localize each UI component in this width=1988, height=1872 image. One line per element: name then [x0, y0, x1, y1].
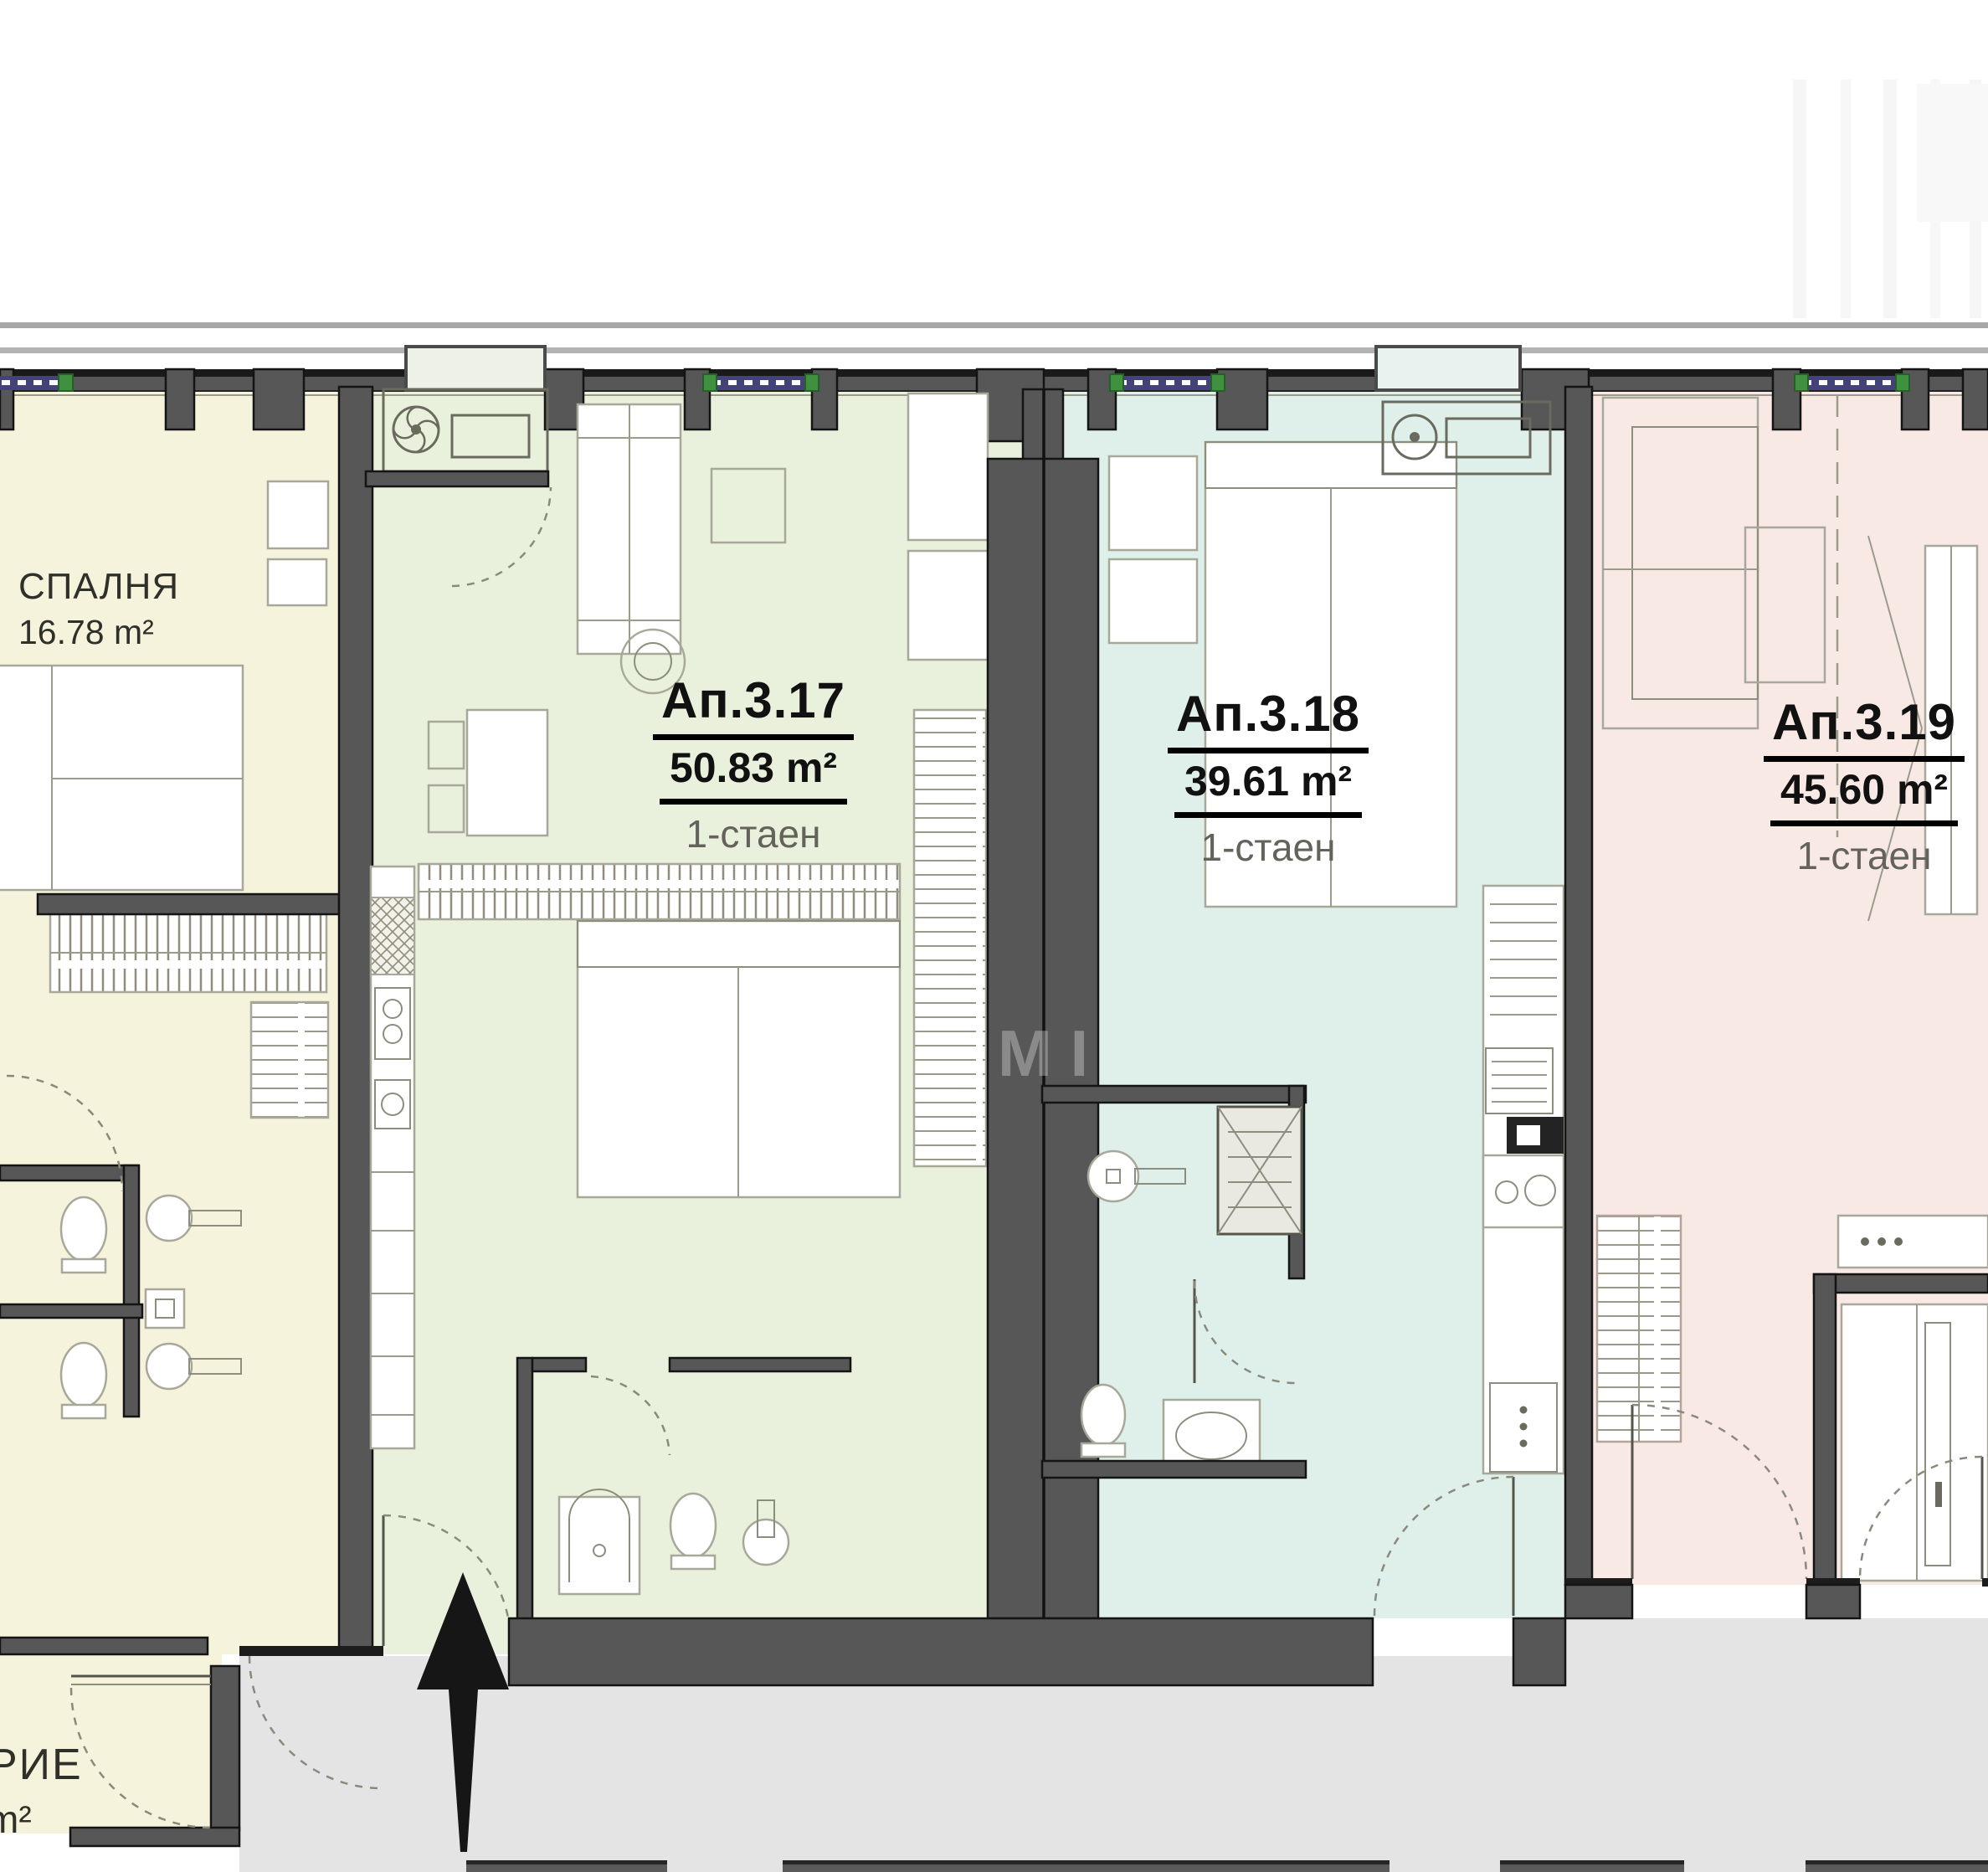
terrace-edge-line: [0, 322, 1988, 328]
room-label-bedroom: СПАЛНЯ 16.78 m²: [18, 563, 179, 655]
hob-icon: [371, 897, 414, 975]
apartment-name: Ап.3.19: [1764, 693, 1965, 762]
wall: [1042, 1461, 1306, 1478]
bay-window-318: [1376, 347, 1520, 390]
toilet-icon: [670, 1494, 716, 1569]
corridor-floor-right: [1565, 1618, 1988, 1669]
toilet-icon: [61, 1197, 106, 1273]
sofa: [578, 404, 681, 654]
wall-left-317: [339, 387, 372, 1654]
closet: [908, 551, 988, 660]
toilet-icon: [1081, 1385, 1125, 1457]
apartment-type: 1-стаен: [1726, 833, 1988, 878]
window-left-apartment: [0, 374, 73, 391]
window-319: [1795, 374, 1909, 391]
nightstand: [268, 559, 326, 605]
kitchen-317: [371, 867, 414, 1448]
apartment-label-317: Ап.3.17 50.83 m² 1-стаен: [615, 671, 891, 856]
toilet-icon: [61, 1343, 106, 1418]
room-label-partial: РИЕ: [0, 1740, 83, 1790]
kitchen-318: [1483, 886, 1564, 1473]
closet: [908, 393, 988, 540]
duct-box: [146, 1289, 184, 1328]
apartment-area: 45.60 m²: [1770, 765, 1958, 826]
wall-318-319: [1565, 387, 1592, 1585]
shelf-unit: [251, 1002, 328, 1118]
wall: [366, 471, 548, 486]
vent-shaft: [1218, 1107, 1302, 1234]
window-318: [1110, 374, 1225, 391]
wall: [124, 1165, 139, 1417]
wall: [532, 1358, 586, 1371]
wall: [38, 894, 339, 914]
wall: [517, 1358, 532, 1654]
apartment-type: 1-стаен: [1130, 825, 1406, 870]
apartment-type: 1-стаен: [615, 811, 891, 856]
apartment-area: 39.61 m²: [1174, 757, 1362, 818]
floor-plan: М І СПАЛНЯ 16.78 m² Ап.3.17 50.83 m² 1-с…: [0, 0, 1988, 1872]
wall: [1814, 1274, 1836, 1584]
window-317: [703, 374, 819, 391]
wall: [1814, 1274, 1988, 1293]
closet: [1109, 559, 1197, 643]
bed-left-apartment: [0, 666, 243, 890]
apartment-name: Ап.3.18: [1168, 685, 1369, 753]
room-area-partial: m²: [0, 1797, 32, 1842]
bed-317: [578, 921, 900, 1197]
wardrobe-ladder: [914, 710, 986, 1166]
wall: [670, 1358, 850, 1371]
floor-plan-drawing: М І: [0, 0, 1988, 1872]
apartment-name: Ап.3.17: [653, 671, 854, 740]
watermark-text: М І: [998, 1016, 1088, 1090]
room-name: СПАЛНЯ: [18, 563, 179, 610]
wall: [0, 1165, 138, 1180]
apartment-area: 50.83 m²: [660, 743, 847, 805]
hob-icon: [1483, 1155, 1564, 1227]
apartment-label-318: Ап.3.18 39.61 m² 1-стаен: [1130, 685, 1406, 870]
wall: [0, 1304, 142, 1318]
closet: [1109, 456, 1197, 550]
apartment-label-319: Ап.3.19 45.60 m² 1-стаен: [1726, 693, 1988, 878]
room-area: 16.78 m²: [18, 610, 179, 655]
bay-window-317: [406, 347, 545, 390]
shower: [559, 1489, 640, 1594]
facade-line: [0, 347, 1988, 353]
shaft-column: [988, 389, 1098, 1618]
nightstand: [268, 481, 328, 548]
